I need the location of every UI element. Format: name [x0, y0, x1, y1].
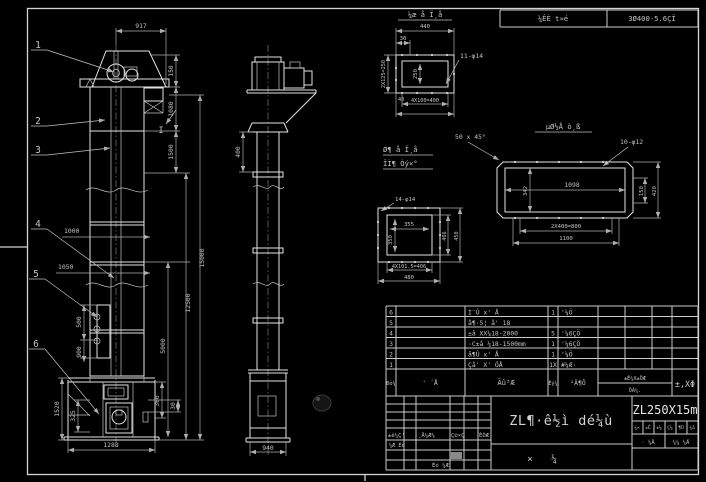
note-10-holes: 10-φ12: [620, 138, 643, 146]
dim-355: 355: [404, 222, 414, 228]
part-name: å¶·5¦ å' 18: [468, 318, 510, 327]
side-view: 400 940: [234, 45, 316, 456]
tb-cell: ¼×: [634, 425, 640, 431]
part-qty: 1: [551, 309, 555, 317]
dim-40-small: 40: [398, 97, 404, 103]
drawing-type-glyph-b: ¼: [551, 454, 557, 465]
dim-1520: 1520: [53, 401, 61, 417]
part-no: 1: [389, 361, 393, 369]
dim-400: 400: [234, 146, 242, 158]
dim-1288: 1288: [103, 441, 119, 449]
part-material: #¼Æ·: [561, 361, 576, 369]
detail-discharge-flange: ¼æ å Ï¸å 440 30 250 2X125=250 40 4X100=4…: [381, 10, 483, 117]
part-no: 2: [389, 351, 393, 359]
dim-406-right: 406: [442, 231, 448, 240]
part-material: '¼Ö: [561, 308, 573, 317]
dim-480: 480: [404, 275, 414, 281]
col-header-no: Ðò¼: [386, 380, 395, 387]
balloon-4: 4: [35, 219, 41, 230]
part-qty: 1: [551, 340, 555, 348]
rev-col-signature: Ç©×Ç: [451, 433, 464, 439]
header-bar: ¼ÊÈ t»é 3Ø400-5.6ÇÏ: [500, 10, 698, 27]
tb-cell: ±Ê: [645, 423, 651, 431]
dim-1000: 1000: [64, 227, 80, 235]
dim-1500: 1500: [167, 144, 175, 160]
dim-420-right: 420: [652, 186, 658, 196]
col-header-name: Ãû³Æ: [497, 378, 515, 387]
dim-12500: 12500: [184, 293, 192, 312]
note-14-holes: 14-φ14: [395, 197, 416, 203]
dim-450-right: 450: [454, 231, 460, 240]
col-header-unit-weight: ±Ê¼X±ÖÆ: [624, 374, 646, 382]
header-cell-left: ¼ÊÈ t»é: [538, 14, 568, 23]
part-name: ·C±å ¼18-1500mm: [468, 339, 526, 348]
detail-base-frame: µØ½Å ò¸ß 50 x 45° 10-φ12 1098 342 150 42…: [455, 122, 661, 246]
dim-4x1015: 4X101.5=406: [392, 264, 426, 270]
smudge-artifact: [313, 395, 331, 411]
cad-drawing-canvas: ¼ÊÈ t»é 3Ø400-5.6ÇÏ: [0, 0, 706, 482]
detail-base-title: µØ½Å ò¸ß: [546, 122, 581, 131]
detail-inlet-title-1: Ø¶ å Ï¸å: [383, 145, 418, 154]
rev-col-change: ¸Ä¼Æ¼: [418, 432, 435, 439]
part-no: 3: [389, 340, 393, 348]
part-qty: 1X: [549, 361, 557, 369]
dim-30: 30: [169, 402, 177, 410]
balloon-2: 2: [35, 116, 41, 127]
dim-1080: 1080: [167, 101, 175, 117]
part-name: ±å XX¼18-2000: [468, 329, 518, 338]
dim-1098: 1098: [564, 181, 580, 189]
dim-940: 940: [262, 444, 274, 452]
dim-5000: 5000: [159, 338, 167, 354]
part-name: Ì¨Û x' Å: [468, 308, 499, 317]
part-name: Çå' X' ÖÅ: [468, 360, 503, 369]
detail-inlet-flange: Ø¶ å Ï¸å ÏÌ¶ Òý×° 14-φ14 355 350 406 450…: [377, 145, 463, 284]
dim-1050: 1050: [58, 263, 74, 271]
sheet-count: · ¼Ä: [641, 439, 655, 446]
dim-2x400: 2X400=800: [551, 224, 581, 230]
balloon-6: 6: [33, 339, 39, 350]
part-no: 6: [389, 309, 393, 317]
dim-1100: 1100: [559, 236, 572, 242]
dim-342: 342: [523, 186, 529, 196]
part-qty: 1: [551, 351, 555, 359]
side-view-dimensions: 400 940: [234, 132, 286, 456]
detail-discharge-title: ¼æ å Ï¸å: [408, 10, 443, 19]
part-material: '¼Ö: [561, 350, 573, 359]
dim-15000: 15000: [198, 248, 206, 267]
col-header-note: ±,XΦ: [675, 379, 695, 389]
dim-350: 350: [388, 235, 394, 245]
part-no: 4: [389, 330, 393, 338]
dim-250-inner: 250: [413, 69, 419, 79]
front-view: 1 2 3 4 5 6 I 917 150 1080 1500 15000: [29, 22, 206, 453]
dim-4x100: 4X100=400: [411, 98, 439, 104]
section-marker-label: I: [158, 125, 163, 135]
dim-2x125: 2X125=250: [381, 60, 387, 88]
dim-917: 917: [135, 22, 147, 30]
col-header-dwg: ' ´Å: [422, 378, 438, 387]
part-material: '¼6ÇÖ: [561, 339, 580, 348]
note-11-holes: 11-φ14: [460, 52, 483, 60]
tb-cell: ¶Ü: [678, 424, 684, 431]
tb-cell: Ç¼: [667, 425, 673, 431]
dim-440: 440: [420, 24, 430, 30]
part-qty: 5: [551, 330, 555, 338]
dim-500: 500: [75, 316, 83, 328]
balloon-3: 3: [35, 145, 41, 156]
balloon-1: 1: [35, 40, 41, 51]
detail-inlet-title-2: ÏÌ¶ Òý×°: [383, 159, 418, 168]
rev-row-check: Éó ¼Æ: [432, 461, 449, 469]
dim-325: 325: [69, 410, 77, 422]
rev-col-date: ÈÕÆ: [479, 431, 490, 439]
col-header-qty: Êý¼: [548, 379, 557, 387]
dim-150: 150: [167, 65, 175, 77]
tb-cell: ±¼: [656, 425, 662, 431]
part-material: '¼6ÇÖ: [561, 329, 580, 338]
col-header-total-weight: ÖÁ¼.: [629, 387, 642, 394]
rev-row-design: ¼Æ Éè: [389, 441, 405, 449]
dim-360: 360: [153, 395, 161, 407]
drawing-svg: ¼ÊÈ t»é 3Ø400-5.6ÇÏ: [0, 0, 706, 482]
dim-150-right: 150: [639, 186, 645, 196]
part-no: 5: [389, 319, 393, 327]
drawing-title: ZL¶·ê½ì dé¼ù: [509, 413, 613, 429]
note-chamfer: 50 x 45°: [455, 133, 486, 141]
title-block: ±ê¼Ç' ¸Ä¼Æ¼ Ç©×Ç ÈÕÆ ¼Æ Éè Éó ¼Æ ZL¶·ê½ì…: [386, 396, 698, 470]
col-header-material: ²Ä¶Ô: [570, 378, 586, 387]
revision-highlight-cell: [450, 452, 462, 459]
drawing-type-glyph-a: ×: [527, 454, 533, 465]
dim-30-offset: 30: [400, 36, 407, 42]
tb-cell: ¼ä: [689, 425, 695, 431]
sheet-number: ¼¼ ¼Ä: [673, 439, 690, 446]
model-number: ZL250X15m: [632, 403, 697, 417]
header-cell-right: 3Ø400-5.6ÇÏ: [628, 14, 676, 23]
balloon-5: 5: [33, 269, 39, 280]
part-name: å¶Û x' Å: [468, 350, 499, 359]
dim-900: 900: [75, 346, 83, 358]
rev-col-mark: ±ê¼Ç': [388, 432, 405, 439]
